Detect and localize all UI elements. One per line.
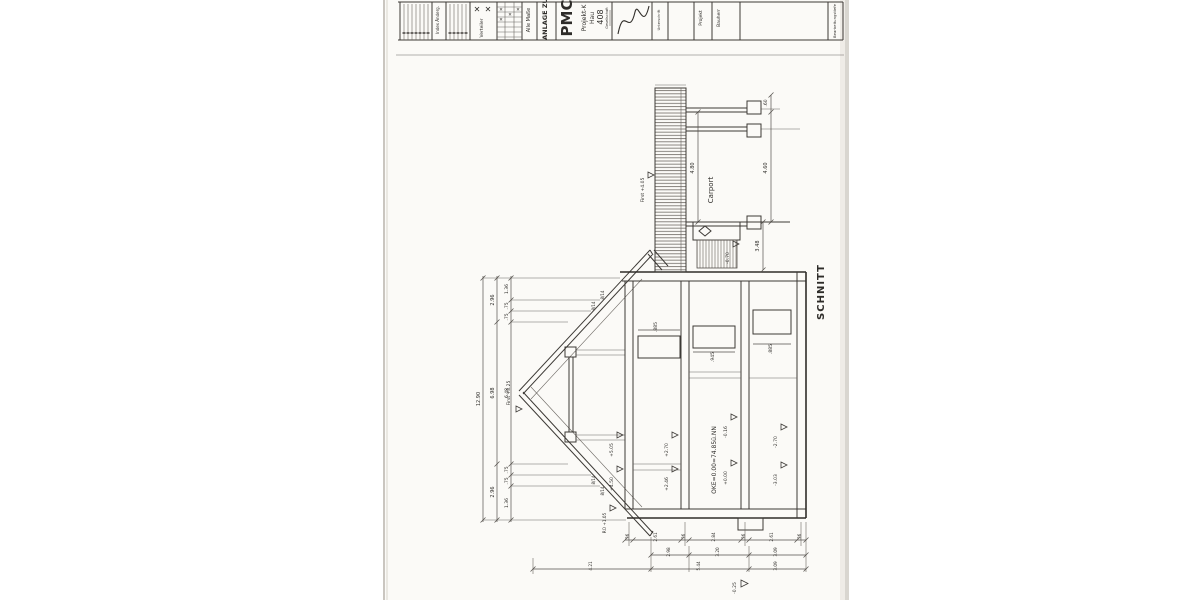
row1-seg6: 2.61 [769,532,774,542]
x-mark-small-2: ✕ [508,13,512,18]
carport-dim-top: .60 [763,99,769,106]
eaves-marker: RO +1.05 [602,512,607,533]
paper-sheet [383,0,849,600]
chainB-seg3: 2.96 [490,486,496,497]
window-dim-3: .885 [768,344,774,354]
row1-seg1: .36 [625,533,630,540]
unterschrift-label: Unterschrift [657,9,661,30]
row3-seg2: 5.44 [696,561,701,571]
x-mark-big-2: ✕ [485,5,492,14]
verteiler-label: Verteiler [479,18,485,37]
row1-seg3: .36 [681,533,686,540]
rafter-note-3: 8/14 [600,486,605,495]
terrace-dim: 3.48 [755,240,761,251]
chainB-seg2: 6.98 [490,387,496,398]
window-dim-2: .945 [710,352,716,362]
chainC-seg1: 1.36 [504,284,510,294]
row2-seg1: 2.98 [666,547,671,557]
level-eg-bot: +0.00 [723,471,729,485]
level-kg-bot: -3.03 [773,474,779,486]
row2-seg3: 3.09 [773,547,778,557]
ridge-marker: First +8.25 [506,381,512,406]
logo-line1: Projekt-K [581,4,588,32]
oke-label: OKE=0.00=74.85ü.NN [711,426,718,494]
row1-seg5: .36 [741,533,746,540]
x-mark-small-1: ✕ [499,8,503,13]
level-og-top: +5.05 [609,443,615,457]
logo-line2: Hau [589,12,596,24]
section-title: SCHNITT [816,264,827,320]
rafter-note-4: 8/14 [591,475,596,484]
x-mark-small-3: ✕ [516,8,520,13]
level-og2-top: +2.70 [664,443,670,457]
rafter-note-1: 8/14 [600,290,605,299]
bearbeitung-label: Bearbeitungstiefe [832,3,837,38]
anlage-label: ANLAGE ZU [541,0,549,40]
logo-subtext: Gesellschaft [605,7,609,29]
x-mark-small-4: ✕ [499,18,503,23]
row3-seg1: 4.21 [588,561,593,571]
level-kg-top: -2.70 [773,436,779,448]
row1-seg4: 2.84 [711,532,716,542]
row2-seg2: 3.20 [715,547,720,557]
chainC-seg3: .75 [504,313,510,320]
level-og-bot: +4.50 [609,477,615,491]
logo-line3: 408 [596,9,605,24]
carport-dim-outer: 4.60 [763,162,769,173]
carport-label: Carport [707,177,715,204]
level-eg-top: -0.16 [723,426,729,438]
window-dim-1: .885 [653,322,659,332]
rafter-note-2: 8/14 [591,301,596,310]
carport-ridge-marker: First +4.05 [640,178,646,203]
ground-level-value: -0.25 [732,582,738,594]
chainA-total: 12.90 [476,392,482,406]
row3-seg3: 3.09 [773,561,778,571]
logo-text: PMC [558,0,576,36]
chainC-seg2: .75 [504,302,510,309]
bauherr-label: Bauherr [716,9,722,27]
x-mark-big-1: ✕ [474,5,481,14]
level-og2-bot: +2.46 [664,477,670,491]
chainC-seg5: .75 [504,466,510,473]
chainC-seg6: .75 [504,477,510,484]
carport-dim-inner: 4.80 [690,162,696,173]
chainC-seg7: 1.36 [504,498,510,508]
row1-seg7: .36 [797,533,802,540]
row1-seg2: 2.61 [653,532,658,542]
chainB-seg1: 2.96 [490,294,496,305]
alle-masse-note: Alle Maße [526,8,532,32]
scanned-plan-page: { "tb": { "index_label": "Index Änderg."… [0,0,1200,600]
projekt-label: Projekt [698,10,704,26]
level-terrace: -0.70 [725,252,731,264]
index-label: Index Änderg. [435,6,440,34]
